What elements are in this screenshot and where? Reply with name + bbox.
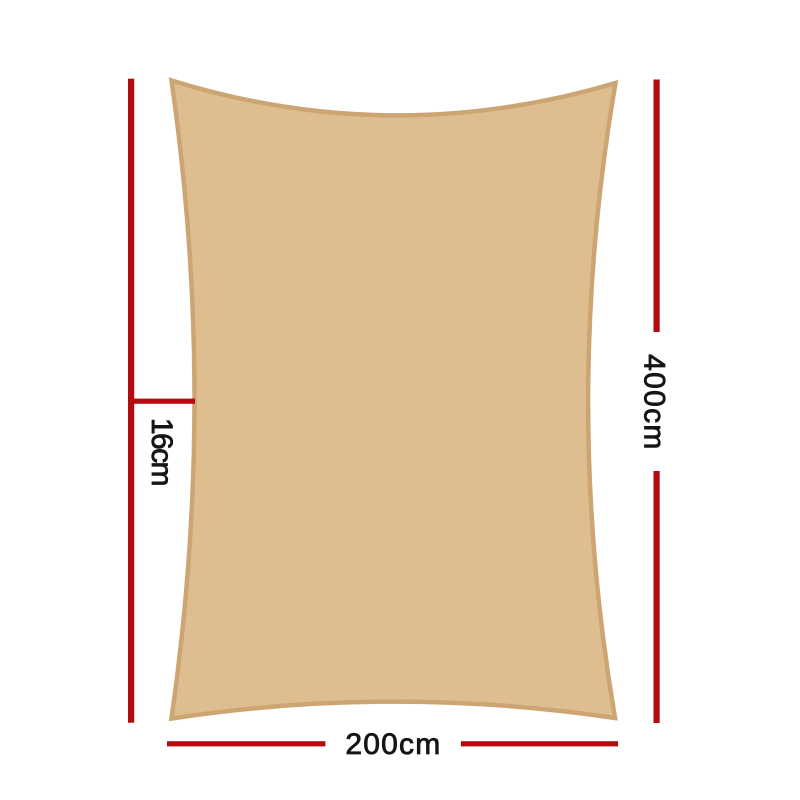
svg-text:400cm: 400cm [637,354,670,451]
svg-text:16cm: 16cm [145,418,178,486]
svg-text:200cm: 200cm [345,728,441,761]
